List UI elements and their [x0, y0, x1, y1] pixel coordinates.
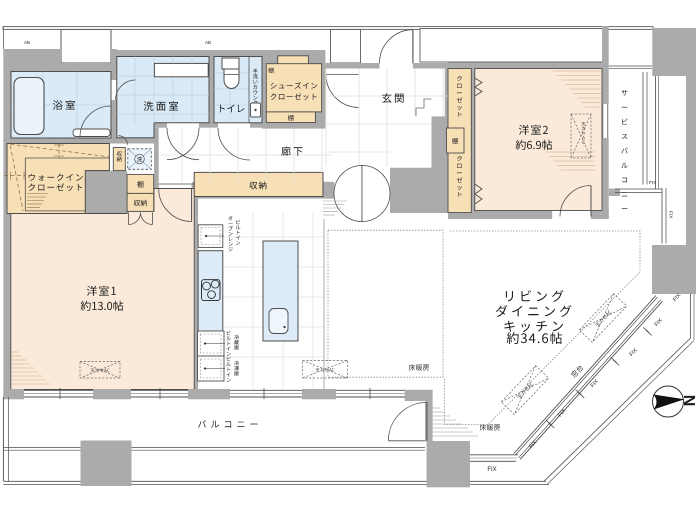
svg-text:AB: AB: [24, 40, 30, 45]
svg-text:N: N: [680, 395, 696, 407]
svg-text:FIX: FIX: [649, 180, 657, 186]
svg-text:FIX: FIX: [487, 467, 496, 473]
svg-text:AB: AB: [205, 40, 211, 45]
